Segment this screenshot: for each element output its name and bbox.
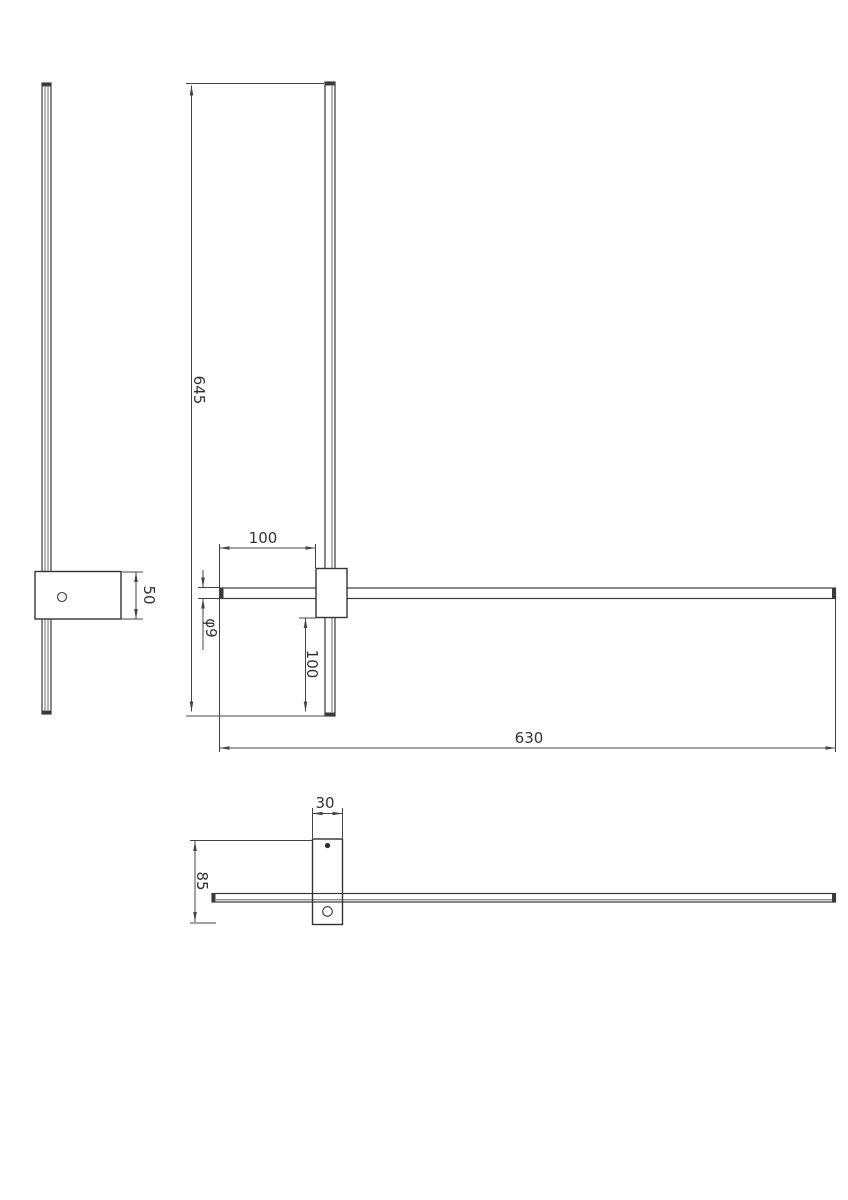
arrowhead-right — [306, 546, 316, 549]
dim-label-645: 645 — [190, 376, 208, 405]
front-vertical-tube-top-cap — [325, 82, 335, 86]
arrowhead-left — [220, 546, 230, 549]
dimension-bracket-width: 30 — [313, 794, 343, 838]
drawing-canvas: 50 645 100 — [0, 0, 848, 1200]
side-view: 50 — [35, 83, 158, 714]
arrowhead-right — [333, 812, 343, 815]
front-horizontal-tube-left-cap — [220, 588, 224, 599]
side-tube-bottom-cap — [42, 711, 51, 715]
arrowhead-up — [190, 86, 194, 96]
arrowhead-up — [304, 618, 308, 628]
dim-label-phi9: φ9 — [202, 618, 220, 637]
arrowhead-down — [193, 912, 197, 922]
arrowhead-left — [313, 812, 323, 815]
front-mount-bracket — [316, 569, 347, 618]
dim-label-100-top: 100 — [249, 529, 278, 547]
front-horizontal-tube-right-cap — [832, 588, 836, 599]
top-bracket-screw-dot — [325, 843, 330, 848]
arrowhead-down — [134, 609, 138, 619]
dim-label-100-bottom: 100 — [303, 650, 321, 679]
top-tube-body — [212, 894, 836, 903]
top-bracket-hole — [323, 907, 333, 917]
top-tube-left-cap — [212, 894, 216, 903]
dim-label-85: 85 — [193, 871, 211, 890]
arrowhead-down — [201, 578, 205, 588]
dimension-tube-diameter: φ9 — [198, 570, 220, 650]
arrowhead-down — [190, 702, 194, 712]
arrowhead-up — [134, 572, 138, 582]
arrowhead-up — [201, 599, 205, 609]
front-horizontal-tube — [220, 588, 836, 599]
arrowhead-right — [826, 746, 836, 749]
front-vertical-tube — [325, 82, 335, 716]
front-view: 645 100 φ9 100 — [186, 82, 836, 752]
dimension-top-offset: 100 — [220, 529, 316, 752]
arrowhead-down — [304, 702, 308, 712]
side-tube-top-cap — [42, 83, 51, 87]
top-tube-right-cap — [832, 894, 836, 903]
dimension-bracket-depth: 85 — [190, 841, 312, 924]
side-mount-bracket — [35, 572, 121, 620]
technical-drawing: 50 645 100 — [0, 0, 848, 1200]
dim-label-630: 630 — [515, 729, 544, 747]
arrowhead-up — [193, 841, 197, 851]
top-view: 30 85 — [190, 794, 836, 925]
arrowhead-left — [220, 746, 230, 749]
dimension-bottom-offset: 100 — [299, 618, 321, 712]
dim-label-50: 50 — [140, 585, 158, 604]
front-vertical-tube-bottom-cap — [325, 713, 335, 717]
dimension-bracket-height: 50 — [122, 572, 158, 619]
dim-label-30: 30 — [315, 794, 334, 812]
side-bracket-hole — [58, 593, 67, 602]
